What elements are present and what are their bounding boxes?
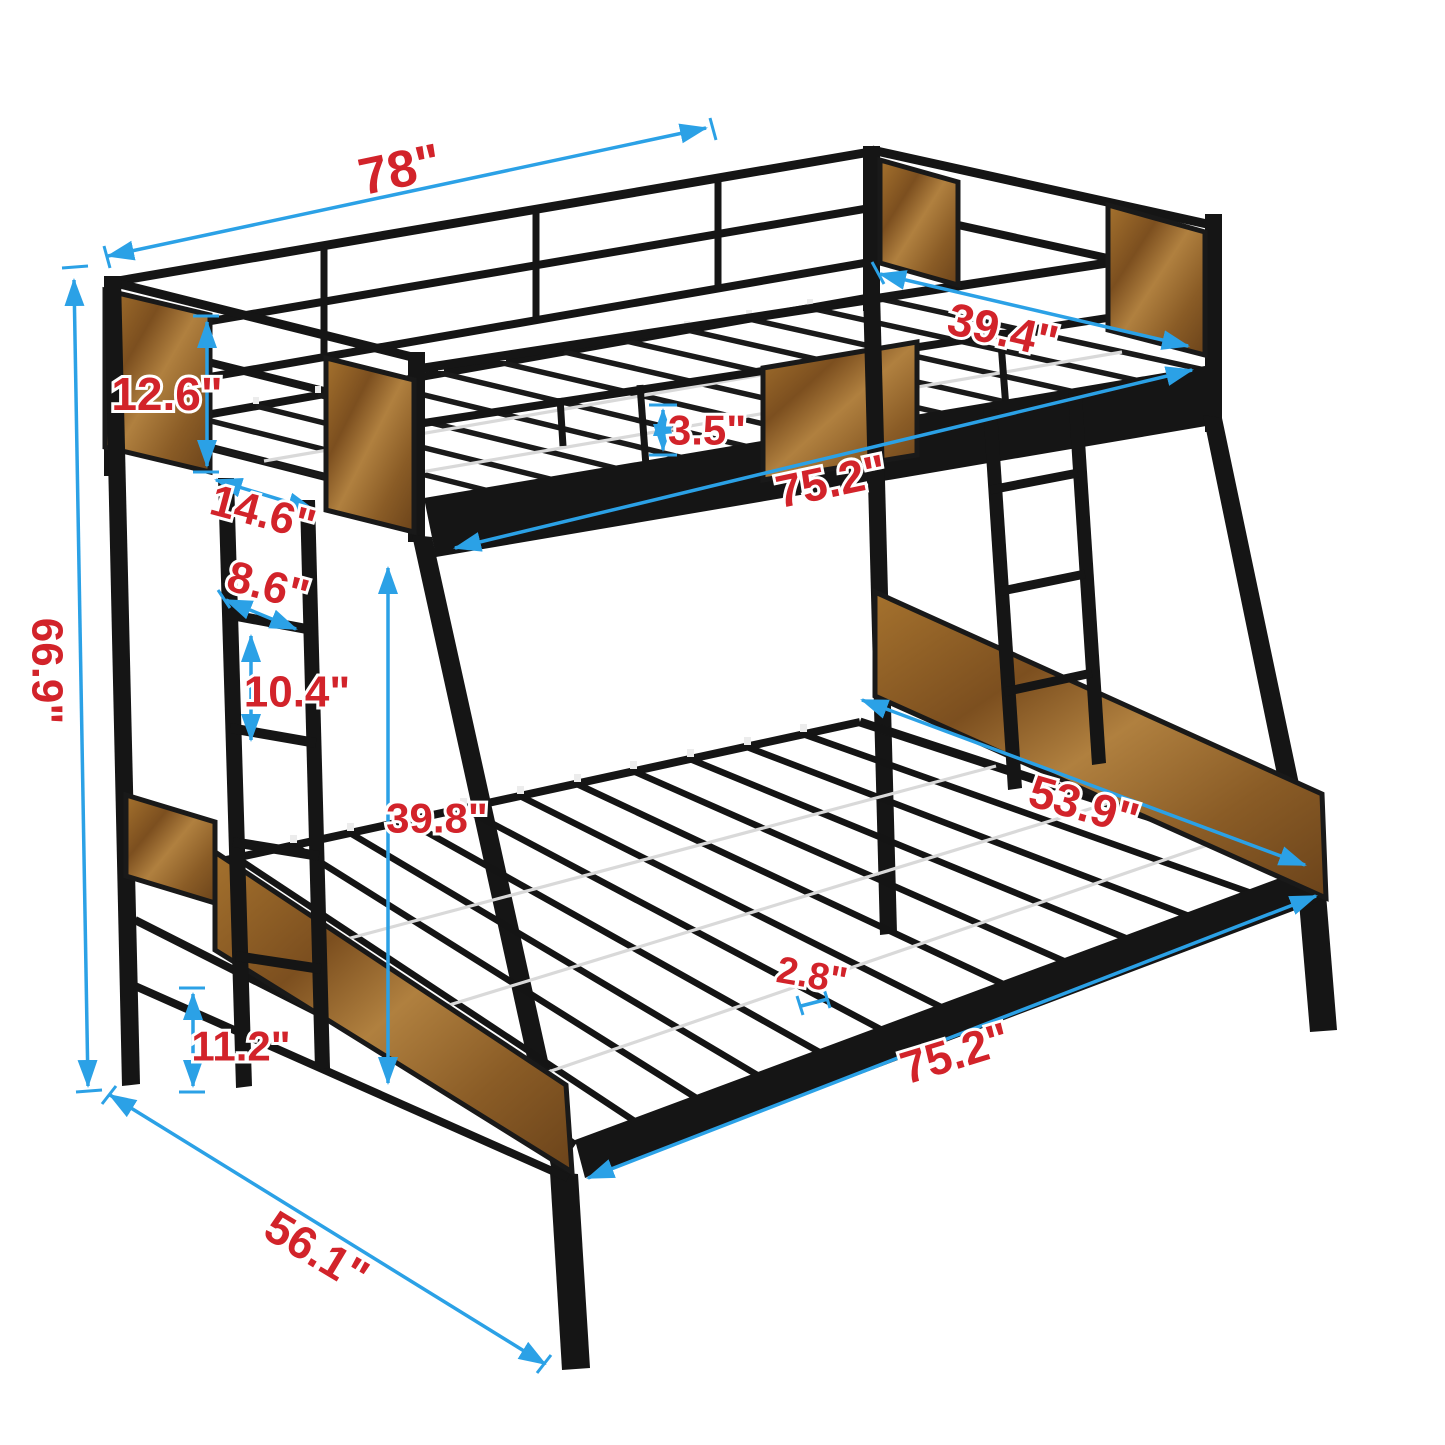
diagram-canvas: 78" 39.4" 12.6" 14.6" 8.6" 10.4" 66.9" 3… (0, 0, 1445, 1445)
dim-label-bunk-clearance: 39.8" (386, 795, 488, 842)
upper-headboard-front-panel (326, 358, 414, 532)
dim-label-lower-deck-height: 11.2" (191, 1023, 290, 1070)
dim-label-overall-depth: 56.1" (256, 1200, 378, 1302)
dim-label-overall-height: 66.9" (23, 618, 72, 725)
bunk-bed-dimension-diagram: 78" 39.4" 12.6" 14.6" 8.6" 10.4" 66.9" 3… (0, 0, 1445, 1445)
dim-label-rung-spacing: 10.4" (244, 668, 351, 717)
dim-label-headboard-panel: 12.6" (111, 368, 222, 420)
dim-label-upper-width: 39.4" (943, 292, 1063, 368)
dim-arrow-overall-height (74, 280, 88, 1086)
dim-label-guardrail-gap: 3.5" (668, 407, 746, 454)
upper-footboard-rear-panel (880, 160, 958, 285)
upper-footboard-front-panel (1108, 205, 1205, 355)
dim-label-overall-length: 78" (354, 133, 447, 207)
lower-headboard-rear-panel (126, 795, 215, 903)
